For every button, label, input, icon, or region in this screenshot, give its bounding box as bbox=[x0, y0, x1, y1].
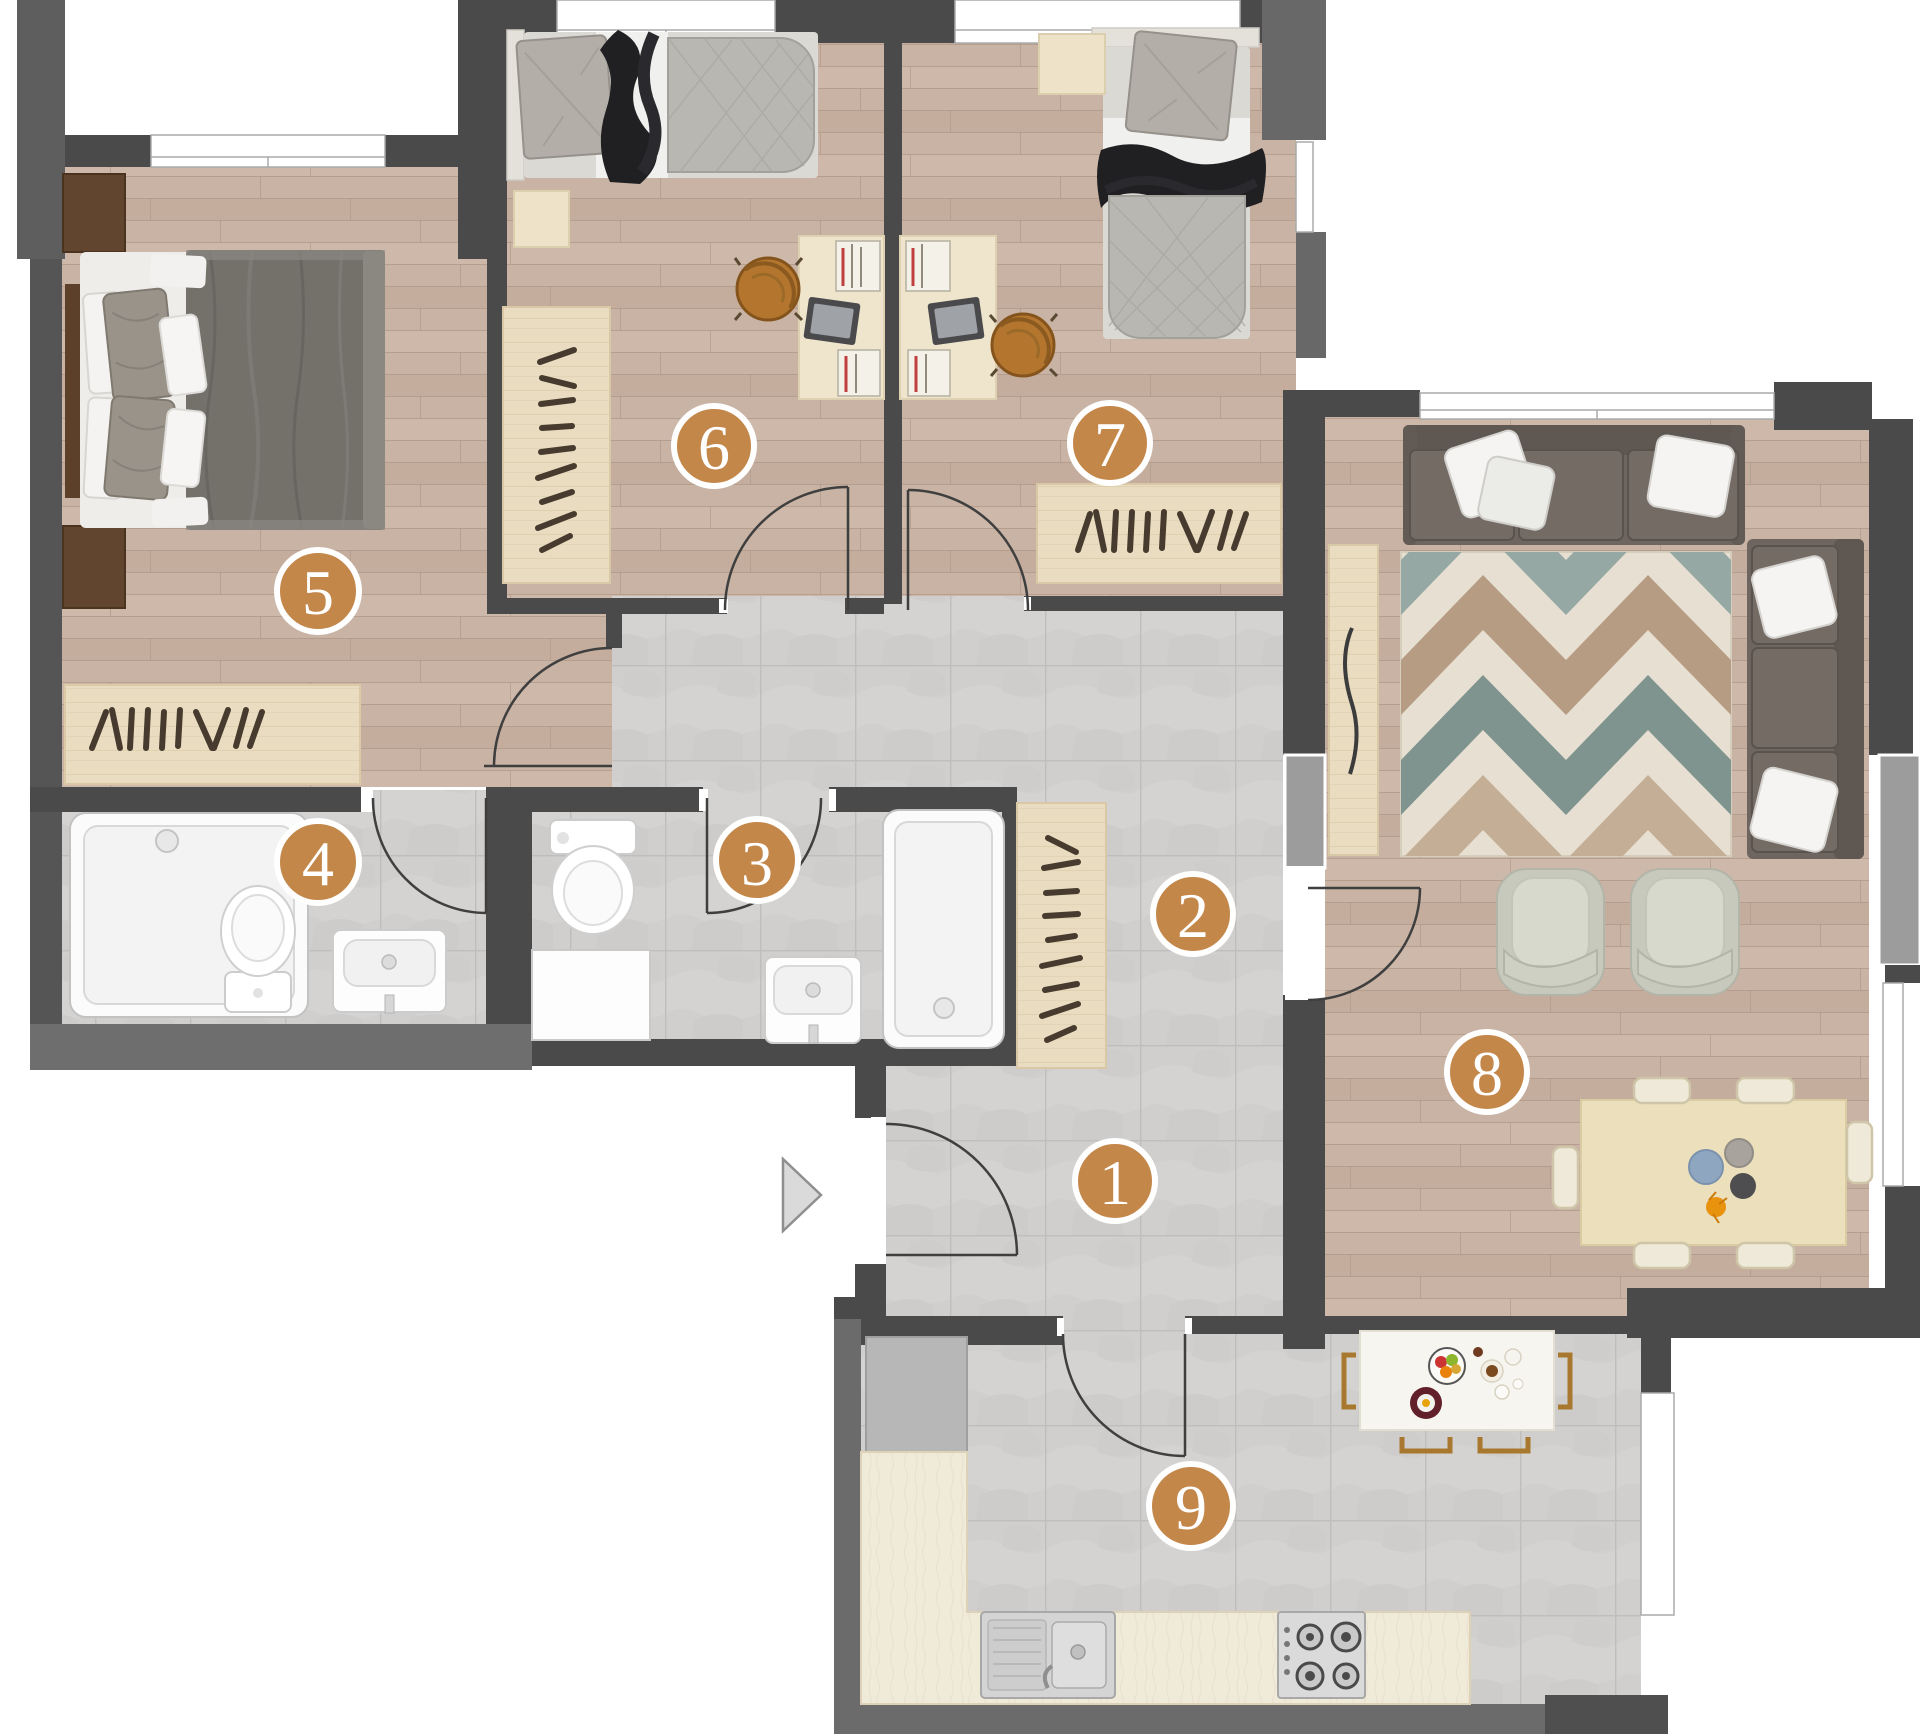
svg-text:7: 7 bbox=[1094, 409, 1126, 480]
svg-text:4: 4 bbox=[302, 828, 334, 899]
svg-text:1: 1 bbox=[1099, 1147, 1131, 1218]
svg-text:2: 2 bbox=[1177, 880, 1209, 951]
svg-text:3: 3 bbox=[741, 828, 773, 899]
svg-text:9: 9 bbox=[1175, 1472, 1207, 1543]
svg-text:6: 6 bbox=[698, 412, 730, 483]
svg-text:8: 8 bbox=[1471, 1038, 1503, 1109]
svg-text:5: 5 bbox=[302, 557, 334, 628]
